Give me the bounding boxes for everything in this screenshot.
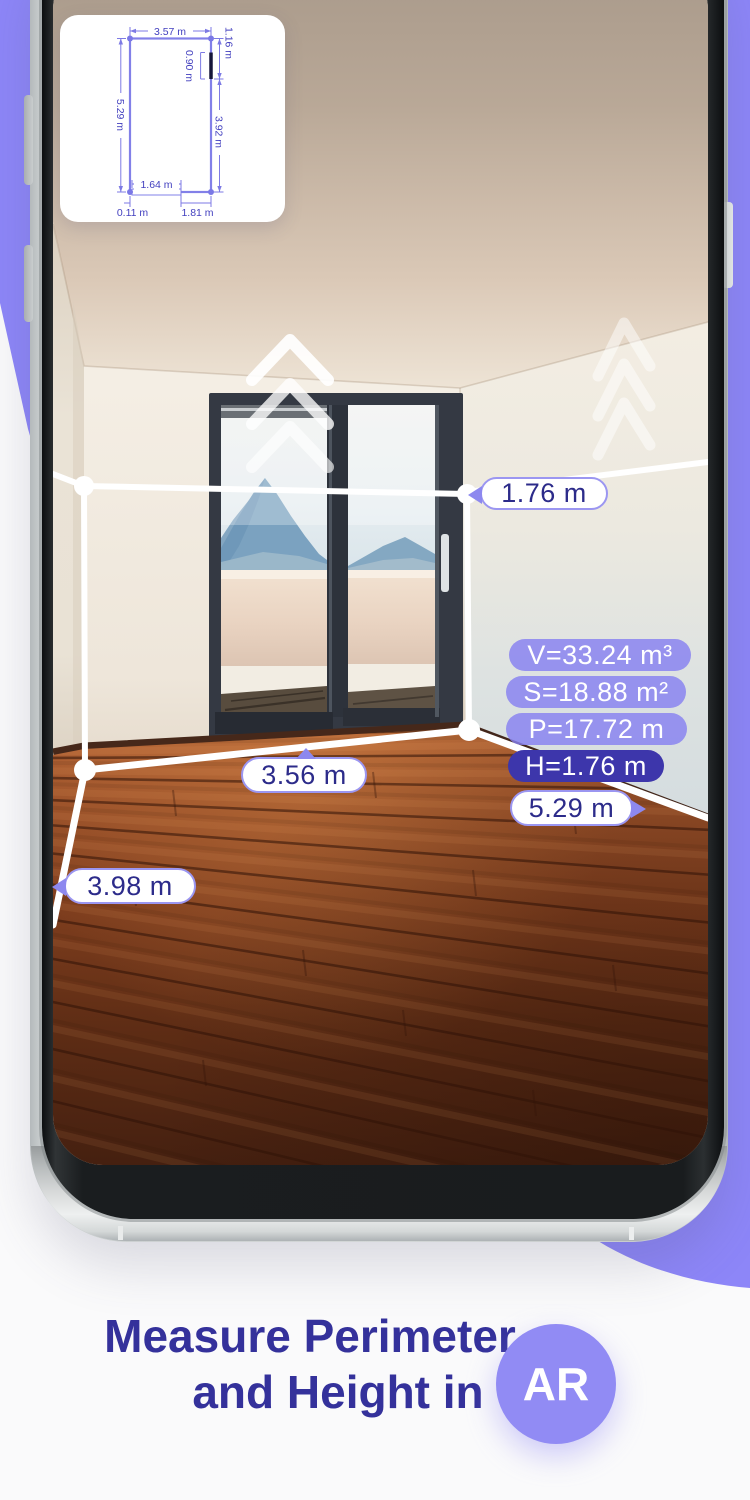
svg-text:0.90 m: 0.90 m <box>183 50 195 82</box>
svg-text:1.81 m: 1.81 m <box>181 207 213 219</box>
svg-text:3.92 m: 3.92 m <box>213 116 225 148</box>
svg-text:1.64 m: 1.64 m <box>140 179 172 191</box>
svg-text:0.11 m: 0.11 m <box>117 207 149 219</box>
svg-text:5.29 m: 5.29 m <box>114 99 126 131</box>
svg-text:1.16 m: 1.16 m <box>223 27 235 59</box>
svg-text:3.57 m: 3.57 m <box>154 26 186 38</box>
